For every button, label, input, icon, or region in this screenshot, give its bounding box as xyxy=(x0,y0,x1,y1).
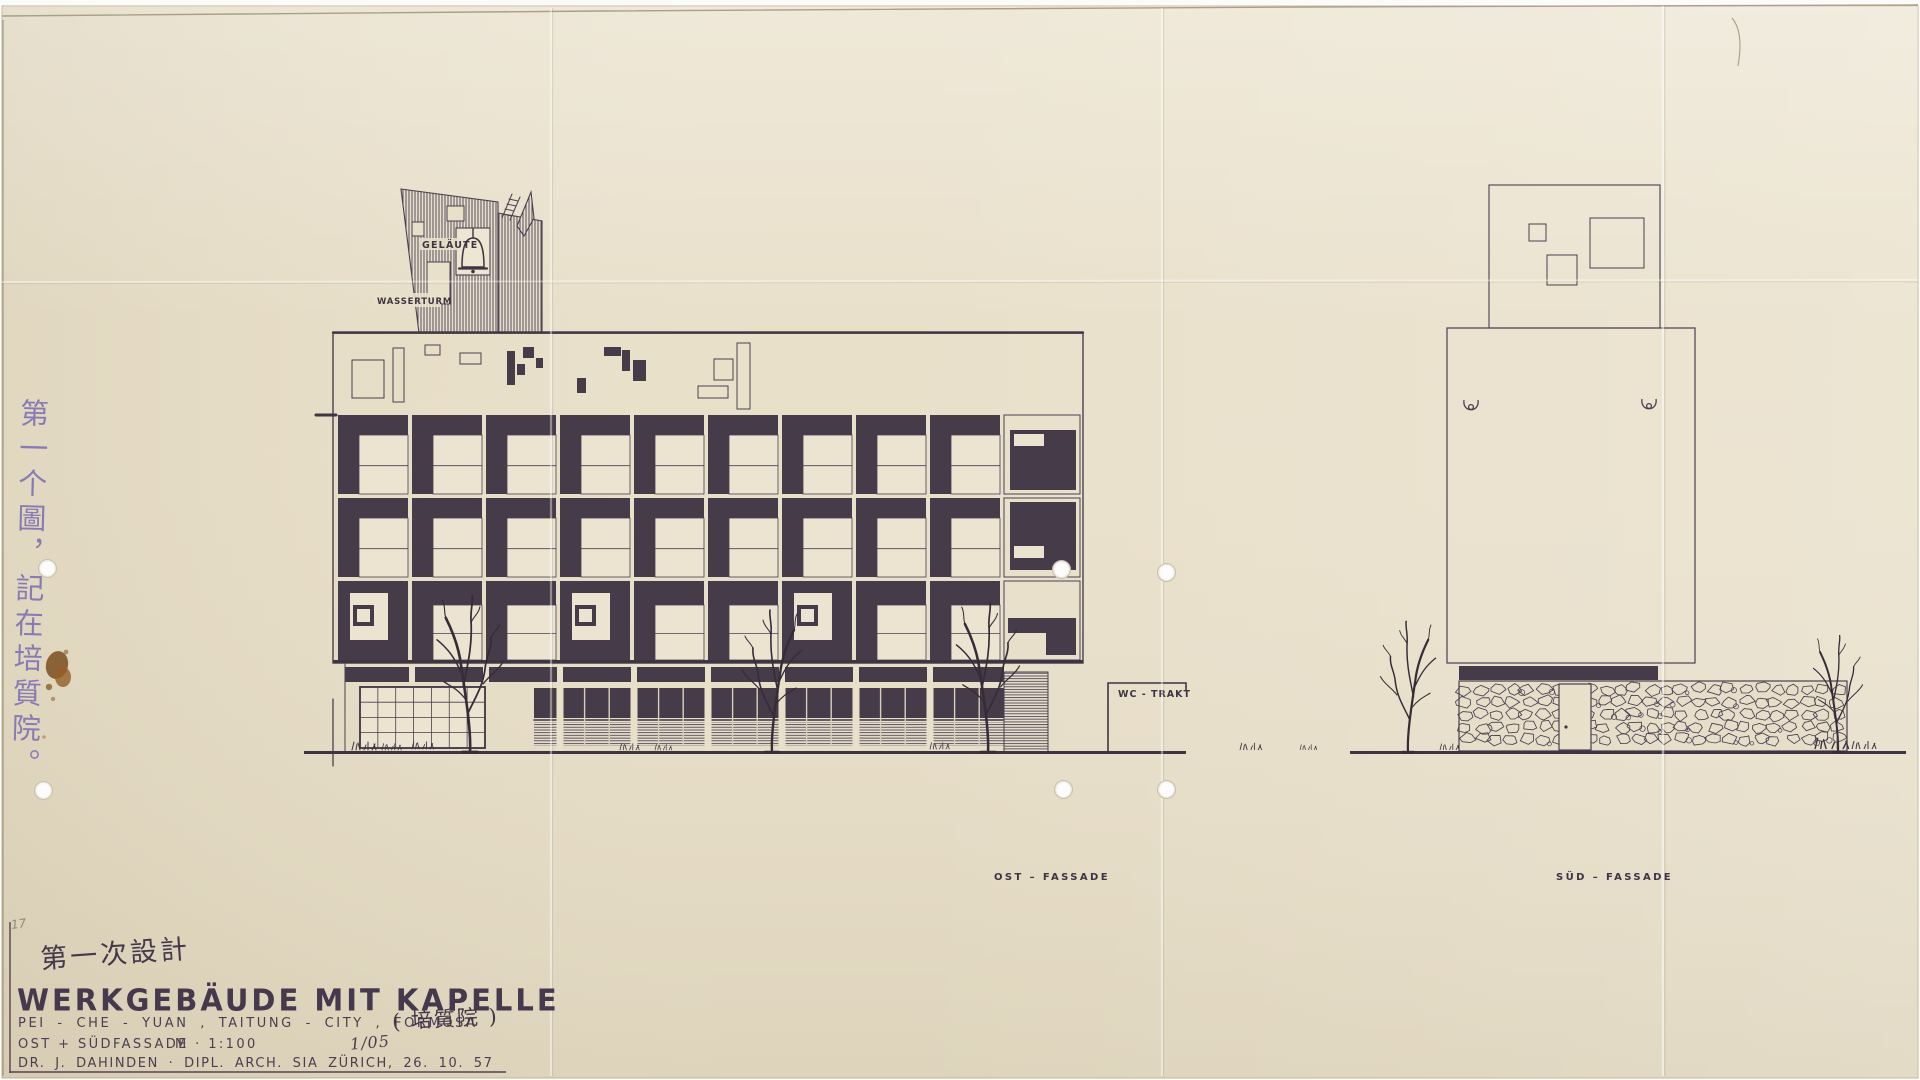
ost-ground-line xyxy=(304,751,1186,754)
facade-module-pier xyxy=(856,581,877,660)
facade-module-pier xyxy=(930,498,951,577)
drawing-info-row: OST + SÜDFASSADE M · 1:100 1/05 xyxy=(18,1037,189,1052)
facade-window xyxy=(359,435,408,494)
facade-module-pier xyxy=(412,581,433,660)
facade-module-pier xyxy=(856,415,877,494)
right-bay-window xyxy=(1014,434,1044,446)
facade-module-pier xyxy=(338,498,359,577)
transom-gap xyxy=(853,666,859,683)
facade-module-pier xyxy=(412,415,433,494)
facade-window xyxy=(655,605,704,660)
facade-module-pier xyxy=(560,498,581,577)
facade-module-pier xyxy=(634,415,655,494)
punch-hole xyxy=(1157,563,1176,582)
sued-ground-line xyxy=(1350,751,1906,754)
parapet-box-dark xyxy=(523,347,534,358)
facade-module-pier xyxy=(634,498,655,577)
facade-window xyxy=(507,518,556,577)
facade-window xyxy=(877,605,926,660)
right-bay-dark xyxy=(1010,502,1076,570)
sued-fassade-label: SÜD – FASSADE xyxy=(1556,869,1673,883)
parapet-box-dark xyxy=(577,378,586,393)
piloti xyxy=(705,684,712,752)
sued-fascia-band xyxy=(1459,666,1658,680)
transom-gap xyxy=(409,666,415,683)
ribbed-wall xyxy=(1004,672,1048,752)
punch-hole xyxy=(34,781,53,800)
facade-module-pier xyxy=(708,415,729,494)
facade-module-pier xyxy=(708,581,729,660)
gelaeute-label: GELÄUTE xyxy=(422,240,479,251)
sheet-number: 1/05 xyxy=(349,1031,390,1053)
right-bay-block xyxy=(1046,633,1076,655)
facade-window xyxy=(581,518,630,577)
door-knob xyxy=(1564,725,1567,728)
facade-window xyxy=(951,518,1000,577)
facade-window xyxy=(803,518,852,577)
bell-clapper xyxy=(471,270,475,274)
tower-window xyxy=(447,206,464,221)
corner-number-note: 17 xyxy=(10,916,27,932)
facade-window xyxy=(951,435,1000,494)
piloti xyxy=(779,684,786,752)
punch-hole xyxy=(1054,780,1073,799)
facade-module-pier xyxy=(634,581,655,660)
architect-row: DR. J. DAHINDEN · DIPL. ARCH. SIA ZÜRICH… xyxy=(18,1056,494,1071)
transom-gap xyxy=(927,666,933,683)
scanned-sheet: GELÄUTE WASSERTURM WC - TRAKT OST – FASS… xyxy=(0,0,1920,1080)
transom-band xyxy=(345,667,1004,682)
piloti xyxy=(853,684,860,752)
right-bay-window xyxy=(1014,546,1044,558)
facade-window xyxy=(655,518,704,577)
titleblock-vertical-rule xyxy=(9,922,11,1073)
facade-module-pier xyxy=(412,498,433,577)
facade-module-pier xyxy=(856,498,877,577)
facade-window xyxy=(507,605,556,660)
drawing-scale: M · 1:100 xyxy=(175,1037,258,1052)
facade-window xyxy=(433,518,482,577)
tower-window xyxy=(412,222,424,236)
handwritten-location-zh: ( 培質院 ) xyxy=(391,1000,499,1036)
stone-wall-outline xyxy=(1459,681,1847,751)
parapet-box-dark xyxy=(517,364,525,375)
parapet-box-dark xyxy=(604,347,621,356)
piloti xyxy=(557,684,564,752)
facade-module-pier xyxy=(930,581,951,660)
facade-module-pier xyxy=(782,498,803,577)
stone-wall xyxy=(1456,681,1848,751)
stone-wall-door xyxy=(1559,684,1591,750)
facade-window xyxy=(877,518,926,577)
facade-module-pier xyxy=(708,498,729,577)
facade-window xyxy=(729,435,778,494)
facade-module-pier xyxy=(486,415,507,494)
punch-hole xyxy=(1052,560,1071,579)
ost-fassade-label: OST – FASSADE xyxy=(994,872,1110,883)
transom-gap xyxy=(557,666,563,683)
facade-window xyxy=(729,518,778,577)
facade-window xyxy=(581,435,630,494)
facade-module-pier xyxy=(560,415,581,494)
parapet-box-dark xyxy=(507,351,515,385)
facade-window xyxy=(803,435,852,494)
facade-window xyxy=(359,518,408,577)
transom-gap xyxy=(705,666,711,683)
piloti xyxy=(927,684,934,752)
facade-module-pier xyxy=(486,498,507,577)
parapet-box-dark xyxy=(536,358,543,368)
wasserturm-label: WASSERTURM xyxy=(377,297,452,307)
facade-module-pier xyxy=(930,415,951,494)
bell-niche xyxy=(456,228,490,275)
facade-window xyxy=(433,435,482,494)
ground-floor xyxy=(333,660,1083,752)
parapet-box-dark xyxy=(633,360,646,381)
drawing-name: OST + SÜDFASSADE xyxy=(18,1037,189,1052)
facade-window xyxy=(877,435,926,494)
transom-gap xyxy=(631,666,637,683)
parapet-box-dark xyxy=(622,350,630,371)
punch-hole xyxy=(38,559,57,578)
facade-window xyxy=(655,435,704,494)
titleblock-bottom-rule xyxy=(9,1071,506,1073)
facade-module-pier xyxy=(338,415,359,494)
right-bay-band xyxy=(1008,618,1076,633)
facade-module-pier xyxy=(782,415,803,494)
punch-hole xyxy=(1157,780,1176,799)
elevation-drawing: GELÄUTE WASSERTURM WC - TRAKT OST – FASS… xyxy=(0,0,1920,1080)
wc-trakt-label: WC - TRAKT xyxy=(1118,689,1191,700)
facade-window xyxy=(507,435,556,494)
piloti xyxy=(631,684,638,752)
